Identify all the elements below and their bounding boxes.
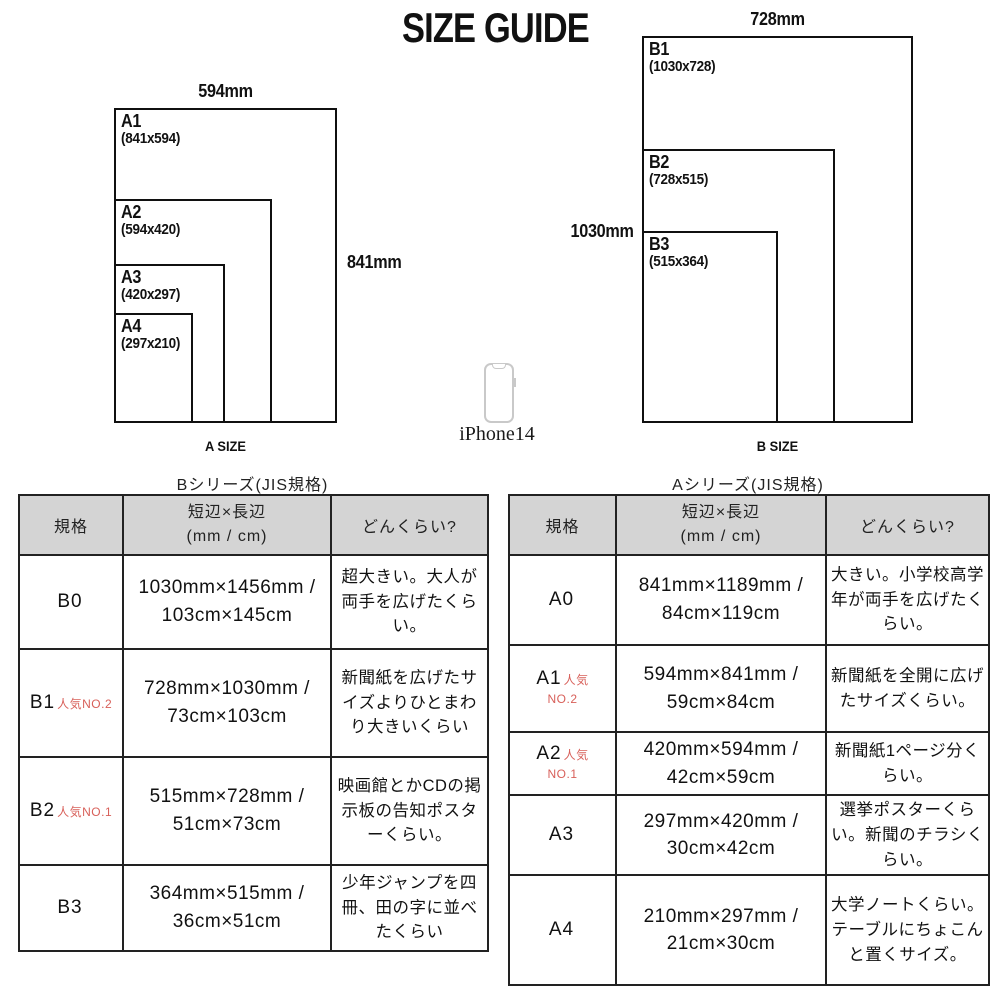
table-row-a1: A1人気NO.2 594mm×841mm / 59cm×84cm 新聞紙を全開に… (509, 645, 989, 732)
table-row-b3: B3 364mm×515mm / 36cm×51cm 少年ジャンプを四冊、田の字… (19, 865, 488, 951)
a-series-table-title: Aシリーズ(JIS規格) (508, 471, 988, 495)
a-header-guide: どんくらい? (826, 495, 989, 555)
smartphone-label: iPhone14 (437, 423, 557, 446)
a2-guide-cell: 新聞紙1ページ分くらい。 (826, 732, 989, 795)
smartphone-side-button (514, 378, 516, 387)
b2-dims: (728x515) (649, 172, 708, 189)
b3-dims: (515x364) (649, 254, 708, 271)
a-header-size-line2: (mm / cm) (620, 525, 822, 549)
b1-name: B1 (649, 39, 715, 59)
a2-dims: (594x420) (121, 222, 180, 239)
a-diagram-caption: A SIZE (123, 438, 328, 454)
a4-sheet-label: A4 (297x210) (121, 316, 180, 353)
a4-spec-cell: A4 (509, 875, 616, 985)
a-diagram-height-label: 841mm (347, 252, 401, 273)
b3-guide-cell: 少年ジャンプを四冊、田の字に並べたくらい (331, 865, 488, 951)
b1-spec-cell: B1人気NO.2 (19, 649, 123, 757)
page-title: SIZE GUIDE (402, 4, 589, 52)
b-diagram-width-label: 728mm (656, 9, 900, 30)
b1-sheet-label: B1 (1030x728) (649, 39, 715, 76)
b-series-table-title: Bシリーズ(JIS規格) (18, 471, 487, 495)
a-table-header-row: 規格 短辺×長辺 (mm / cm) どんくらい? (509, 495, 989, 555)
b0-spec-cell: B0 (19, 555, 123, 649)
a-series-table: 規格 短辺×長辺 (mm / cm) どんくらい? A0 841mm×1189m… (508, 494, 990, 986)
table-row-b2: B2人気NO.1 515mm×728mm / 51cm×73cm 映画館とかCD… (19, 757, 488, 865)
b3-sheet-label: B3 (515x364) (649, 234, 708, 271)
a2-sheet-label: A2 (594x420) (121, 202, 180, 239)
a2-name: A2 (121, 202, 180, 222)
b2-name: B2 (649, 152, 708, 172)
a3-name: A3 (121, 267, 180, 287)
a1-size-cell: 594mm×841mm / 59cm×84cm (616, 645, 826, 732)
a3-sheet-label: A3 (420x297) (121, 267, 180, 304)
a0-guide-cell: 大きい。小学校高学年が両手を広げたくらい。 (826, 555, 989, 645)
a4-guide-cell: 大学ノートくらい。テーブルにちょこんと置くサイズ。 (826, 875, 989, 985)
a-diagram-width-label: 594mm (125, 81, 326, 102)
b3-spec-cell: B3 (19, 865, 123, 951)
table-row-a0: A0 841mm×1189mm / 84cm×119cm 大きい。小学校高学年が… (509, 555, 989, 645)
a4-name: A4 (121, 316, 180, 336)
table-row-a2: A2人気NO.1 420mm×594mm / 42cm×59cm 新聞紙1ページ… (509, 732, 989, 795)
a3-size-cell: 297mm×420mm / 30cm×42cm (616, 795, 826, 875)
a1-sheet-label: A1 (841x594) (121, 111, 180, 148)
a1-guide-cell: 新聞紙を全開に広げたサイズくらい。 (826, 645, 989, 732)
b3-name: B3 (649, 234, 708, 254)
b-series-table: 規格 短辺×長辺 (mm / cm) どんくらい? B0 1030mm×1456… (18, 494, 489, 952)
a4-size-cell: 210mm×297mm / 21cm×30cm (616, 875, 826, 985)
b-diagram-caption: B SIZE (653, 438, 902, 454)
b0-guide-cell: 超大きい。大人が両手を広げたくらい。 (331, 555, 488, 649)
a1-spec-cell: A1人気NO.2 (509, 645, 616, 732)
size-guide-page: { "title": "SIZE GUIDE", "colors": { "ac… (0, 0, 1000, 1000)
table-row-a3: A3 297mm×420mm / 30cm×42cm 選挙ポスターくらい。新聞の… (509, 795, 989, 875)
a3-dims: (420x297) (121, 287, 180, 304)
a4-dims: (297x210) (121, 336, 180, 353)
a1-dims: (841x594) (121, 131, 180, 148)
a2-size-cell: 420mm×594mm / 42cm×59cm (616, 732, 826, 795)
b2-guide-cell: 映画館とかCDの掲示板の告知ポスターくらい。 (331, 757, 488, 865)
b2-size-cell: 515mm×728mm / 51cm×73cm (123, 757, 331, 865)
a-header-spec: 規格 (509, 495, 616, 555)
table-row-b1: B1人気NO.2 728mm×1030mm / 73cm×103cm 新聞紙を広… (19, 649, 488, 757)
a-header-size: 短辺×長辺 (mm / cm) (616, 495, 826, 555)
smartphone-notch (492, 364, 506, 369)
a3-spec-cell: A3 (509, 795, 616, 875)
b-diagram-height-label: 1030mm (556, 221, 633, 242)
table-row-a4: A4 210mm×297mm / 21cm×30cm 大学ノートくらい。テーブル… (509, 875, 989, 985)
b-header-size-line2: (mm / cm) (127, 525, 327, 549)
b0-size-cell: 1030mm×1456mm / 103cm×145cm (123, 555, 331, 649)
a-header-size-line1: 短辺×長辺 (620, 501, 822, 525)
smartphone-icon (484, 363, 514, 423)
b-header-size: 短辺×長辺 (mm / cm) (123, 495, 331, 555)
popularity-badge: 人気 (564, 748, 589, 762)
b-header-size-line1: 短辺×長辺 (127, 501, 327, 525)
a0-size-cell: 841mm×1189mm / 84cm×119cm (616, 555, 826, 645)
popularity-badge: 人気 (564, 673, 589, 687)
b3-sheet-outline: B3 (515x364) (642, 231, 778, 423)
popularity-badge-line2: NO.2 (513, 690, 612, 709)
a0-spec-cell: A0 (509, 555, 616, 645)
b1-guide-cell: 新聞紙を広げたサイズよりひとまわり大きいくらい (331, 649, 488, 757)
b2-spec-cell: B2人気NO.1 (19, 757, 123, 865)
b1-dims: (1030x728) (649, 59, 715, 76)
b-header-spec: 規格 (19, 495, 123, 555)
popularity-badge: 人気NO.1 (57, 805, 112, 819)
popularity-badge-line2: NO.1 (513, 765, 612, 784)
table-row-b0: B0 1030mm×1456mm / 103cm×145cm 超大きい。大人が両… (19, 555, 488, 649)
a3-guide-cell: 選挙ポスターくらい。新聞のチラシくらい。 (826, 795, 989, 875)
b2-sheet-label: B2 (728x515) (649, 152, 708, 189)
b3-size-cell: 364mm×515mm / 36cm×51cm (123, 865, 331, 951)
b1-size-cell: 728mm×1030mm / 73cm×103cm (123, 649, 331, 757)
b-table-header-row: 規格 短辺×長辺 (mm / cm) どんくらい? (19, 495, 488, 555)
a4-sheet-outline: A4 (297x210) (114, 313, 193, 423)
a1-name: A1 (121, 111, 180, 131)
popularity-badge: 人気NO.2 (57, 697, 112, 711)
a2-spec-cell: A2人気NO.1 (509, 732, 616, 795)
b-header-guide: どんくらい? (331, 495, 488, 555)
